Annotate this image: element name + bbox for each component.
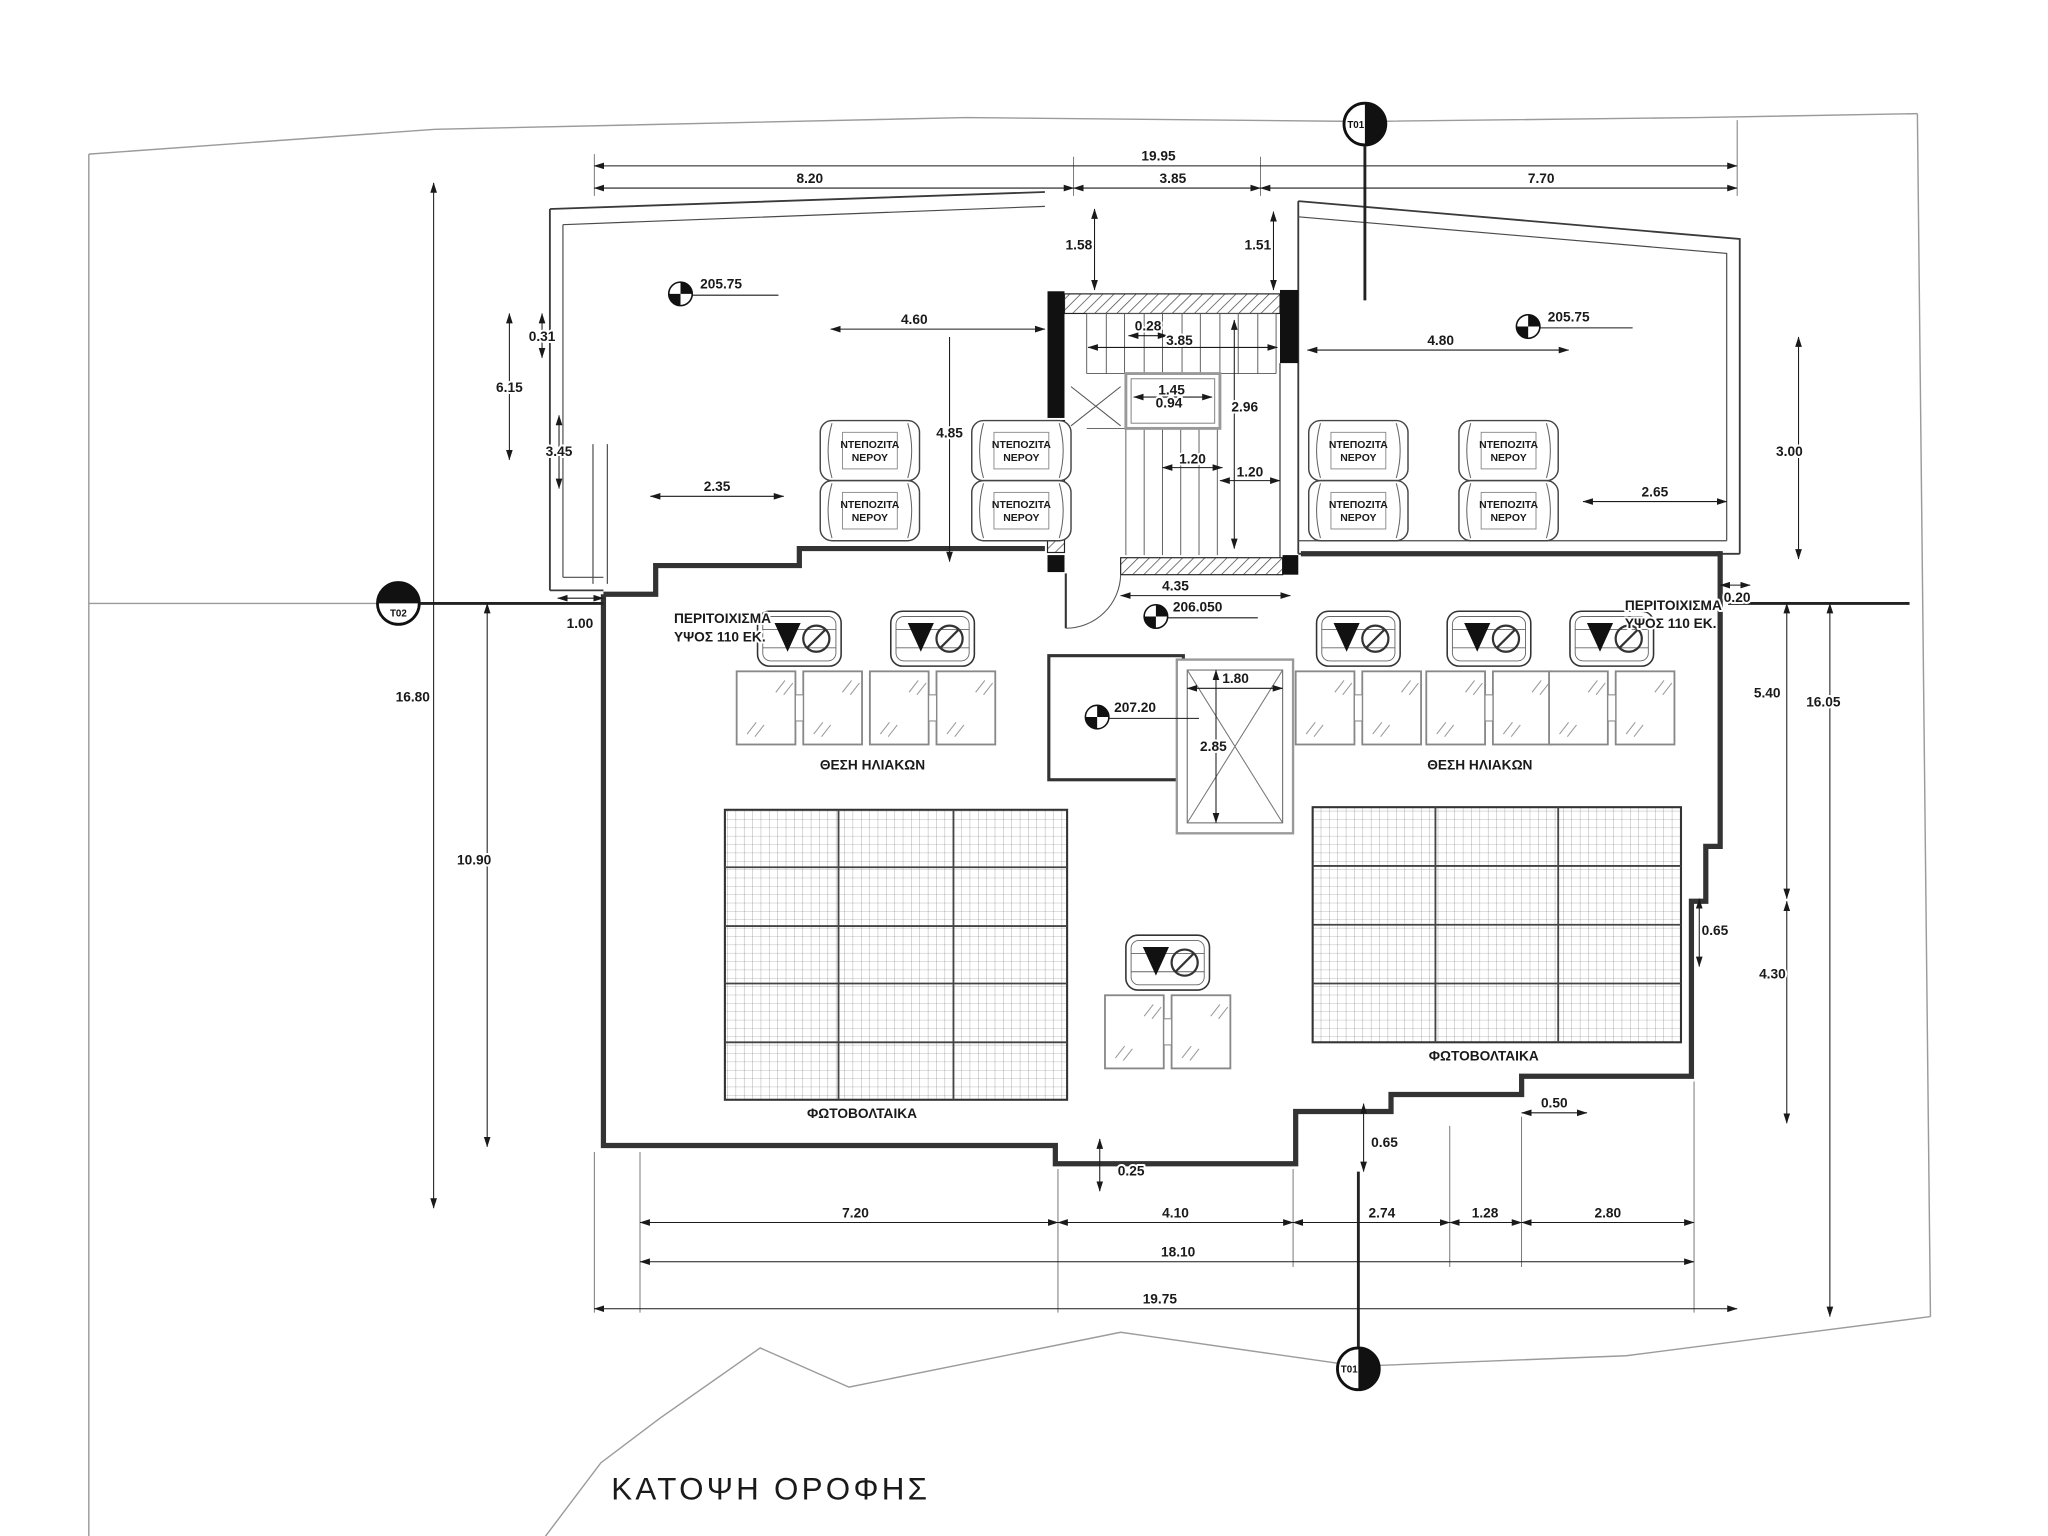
dim-0-94: 0.94 [1156, 396, 1183, 411]
dimensions-bottom: 0.65 0.25 7.20 4.10 2.74 1.28 2.80 18.10… [594, 1081, 1737, 1312]
dim-2-74: 2.74 [1369, 1205, 1396, 1220]
dim-1-80: 1.80 [1222, 671, 1249, 686]
dim-0-28: 0.28 [1135, 318, 1162, 333]
solar-heater-unit [891, 611, 975, 666]
dim-16-05: 16.05 [1806, 695, 1841, 710]
dim-4-80: 4.80 [1427, 333, 1454, 348]
dim-4-85: 4.85 [936, 426, 963, 441]
elevation-marker-icon [669, 282, 693, 306]
stair-break-line [1071, 387, 1121, 426]
drawing-title: ΚΑΤΟΨΗ ΟΡΟΦΗΣ [611, 1471, 930, 1506]
solar-panel-pair [1549, 671, 1674, 744]
tank-label: ΝΤΕΠΟΖΙΤΑ [992, 500, 1051, 511]
t02-marker-icon: T02 [377, 583, 419, 625]
dim-19-95: 19.95 [1141, 149, 1176, 164]
stair-wall-hatched-bottom [1121, 558, 1283, 575]
dim-0-50: 0.50 [1541, 1096, 1568, 1111]
tank-label: ΝΕΡΟΥ [1003, 513, 1039, 524]
tank-label: ΝΤΕΠΟΖΙΤΑ [840, 500, 899, 511]
pv-label-right: ΦΩΤΟΒΟΛΤΑΙΚΑ [1429, 1049, 1539, 1064]
dim-0-20: 0.20 [1724, 590, 1751, 605]
t01-top-marker-icon: T01 [1344, 103, 1386, 145]
t01-bottom-label: T01 [1341, 1365, 1358, 1376]
tank-label: ΝΤΕΠΟΖΙΤΑ [1329, 440, 1388, 451]
dim-3-45: 3.45 [546, 444, 573, 459]
dim-1-20-a: 1.20 [1179, 452, 1206, 467]
stair-treads [1087, 313, 1276, 555]
tank-label: ΝΕΡΟΥ [1003, 453, 1039, 464]
pv-label-left: ΦΩΤΟΒΟΛΤΑΙΚΑ [807, 1106, 917, 1121]
t01-bottom-marker-icon: T01 [1337, 1348, 1379, 1390]
tank-label: ΝΕΡΟΥ [1340, 453, 1376, 464]
stair-wall-black-bottom-cap [1283, 555, 1299, 575]
roof-plan-drawing: ΝΤΕΠΟΖΙΤΑ ΝΕΡΟΥ ΝΤΕΠΟΖΙΤΑ ΝΕΡΟΥ ΝΤΕΠΟΖΙΤ… [0, 0, 2048, 1536]
pv-array-right: ΦΩΤΟΒΟΛΤΑΙΚΑ [1313, 807, 1681, 1063]
parapet-label-left-line2: ΥΨΟΣ 110 ΕΚ. [674, 629, 766, 644]
dim-8-20: 8.20 [796, 171, 823, 186]
dim-0-65-bottom: 0.65 [1371, 1135, 1398, 1150]
section-t01-top: T01 [1344, 103, 1386, 300]
dim-16-80: 16.80 [396, 689, 431, 704]
solar-heater-unit [1317, 611, 1401, 666]
dim-2-65: 2.65 [1642, 484, 1669, 499]
dim-7-20: 7.20 [842, 1205, 869, 1220]
solar-heater-unit [1126, 935, 1210, 990]
dim-1-20-b: 1.20 [1237, 465, 1264, 480]
dim-1-58: 1.58 [1066, 237, 1093, 252]
dim-2-35: 2.35 [704, 479, 731, 494]
parapet-label-left-line1: ΠΕΡΙΤΟΙΧΙΣΜΑ [674, 611, 771, 626]
tank-label: ΝΕΡΟΥ [1490, 513, 1526, 524]
wing-step-lines [593, 444, 607, 584]
tank-label: ΝΤΕΠΟΖΙΤΑ [1479, 440, 1538, 451]
tank-label: ΝΤΕΠΟΖΙΤΑ [1329, 500, 1388, 511]
dimensions-stairs: 0.28 3.85 1.45 0.94 2.96 1.20 1.20 4.35 [1088, 318, 1290, 595]
dim-2-80: 2.80 [1595, 1205, 1622, 1220]
dim-19-75: 19.75 [1143, 1292, 1178, 1307]
dim-2-96: 2.96 [1231, 399, 1258, 414]
tank-label: ΝΤΕΠΟΖΙΤΑ [1479, 500, 1538, 511]
elevation-right-wing: 205.75 [1548, 309, 1590, 324]
stair-wall-black-left-cap [1048, 555, 1065, 572]
elevation-marker-icon [1085, 705, 1109, 729]
dim-3-85-stairs: 3.85 [1166, 333, 1193, 348]
pv-array-left: ΦΩΤΟΒΟΛΤΑΙΚΑ [725, 810, 1067, 1121]
water-tanks: ΝΤΕΠΟΖΙΤΑ ΝΕΡΟΥ ΝΤΕΠΟΖΙΤΑ ΝΕΡΟΥ ΝΤΕΠΟΖΙΤ… [820, 421, 1558, 541]
dim-4-10: 4.10 [1162, 1205, 1189, 1220]
elevation-stair-exit: 206.050 [1173, 599, 1223, 614]
dim-0-65-right: 0.65 [1702, 923, 1729, 938]
stair-wall-hatched-top [1064, 294, 1280, 314]
dim-5-40: 5.40 [1754, 685, 1781, 700]
dim-3-85-top: 3.85 [1160, 171, 1187, 186]
stair-wall-black-right [1280, 290, 1298, 363]
dim-6-15: 6.15 [496, 380, 523, 395]
dim-2-85: 2.85 [1200, 739, 1227, 754]
tank-label: ΝΤΕΠΟΖΙΤΑ [992, 440, 1051, 451]
terrain-line [118, 1317, 1931, 1536]
tank-label: ΝΕΡΟΥ [1490, 453, 1526, 464]
parapet-label-right-line1: ΠΕΡΙΤΟΙΧΙΣΜΑ [1625, 598, 1722, 613]
section-t01-bottom: T01 [1337, 1172, 1379, 1390]
tank-label: ΝΕΡΟΥ [1340, 513, 1376, 524]
t01-top-label: T01 [1347, 120, 1364, 131]
solar-panel-pair [737, 671, 862, 744]
solar-heater-unit [1447, 611, 1531, 666]
dim-4-35: 4.35 [1162, 578, 1189, 593]
solar-position-label-right: ΘΕΣΗ ΗΛΙΑΚΩΝ [1427, 757, 1532, 772]
parapet-label-right-line2: ΥΨΟΣ 110 ΕΚ. [1625, 616, 1717, 631]
door-swing-arc [1066, 575, 1121, 629]
dim-0-25: 0.25 [1118, 1164, 1145, 1179]
left-roof-wing [550, 192, 1045, 590]
solar-panel-pair [870, 671, 995, 744]
tank-label: ΝΤΕΠΟΖΙΤΑ [840, 440, 899, 451]
tank-label: ΝΕΡΟΥ [852, 453, 888, 464]
solar-panel-pair [1296, 671, 1421, 744]
dim-0-31: 0.31 [529, 329, 556, 344]
elevation-marker-icon [1516, 315, 1540, 339]
dim-7-70: 7.70 [1528, 171, 1555, 186]
t02-label: T02 [390, 608, 407, 619]
elevation-main-roof: 207.20 [1114, 700, 1156, 715]
solar-panel-pair [1426, 671, 1551, 744]
roof-access-room [1049, 656, 1184, 780]
dim-10-90: 10.90 [457, 853, 492, 868]
tank-label: ΝΕΡΟΥ [852, 513, 888, 524]
elevation-marker-icon [1144, 605, 1168, 629]
dim-1-28: 1.28 [1472, 1205, 1499, 1220]
dim-1-51: 1.51 [1244, 237, 1271, 252]
solar-panel-pair [1105, 995, 1230, 1068]
dim-3-00: 3.00 [1776, 444, 1803, 459]
dim-4-30: 4.30 [1759, 966, 1786, 981]
solar-position-label-left: ΘΕΣΗ ΗΛΙΑΚΩΝ [820, 757, 925, 772]
elevation-left-wing: 205.75 [700, 277, 742, 292]
dim-4-60: 4.60 [901, 312, 928, 327]
dim-1-00: 1.00 [567, 616, 594, 631]
dim-18-10: 18.10 [1161, 1244, 1196, 1259]
stair-wall-black-left-top [1048, 291, 1065, 418]
stair-exit-door [1066, 573, 1121, 628]
